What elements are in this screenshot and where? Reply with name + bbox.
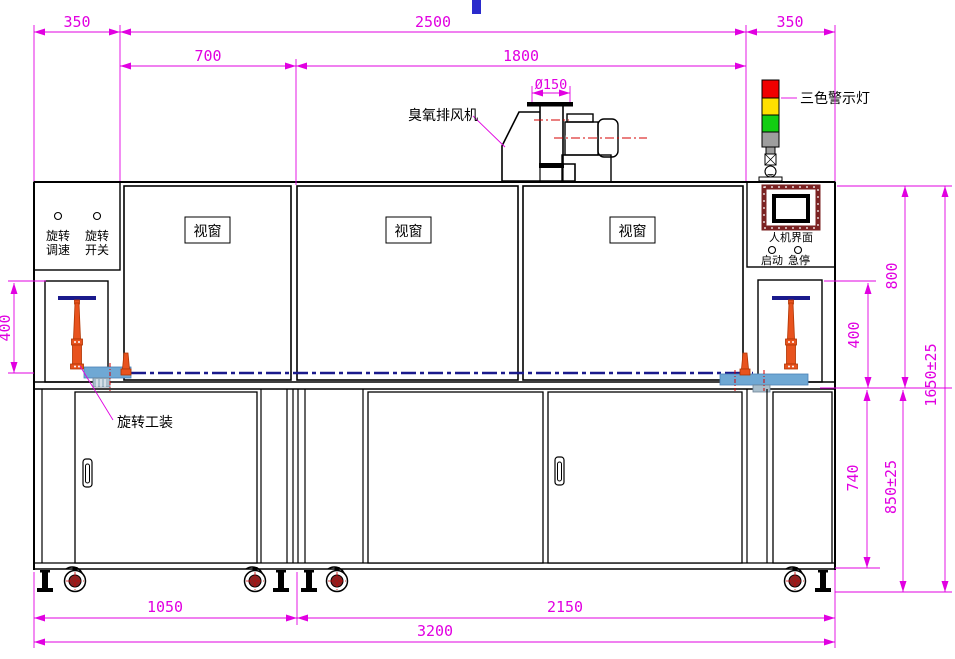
left-rotation-fixture <box>58 296 96 369</box>
viewport-label-3: 视窗 <box>619 223 647 239</box>
leveling-foot <box>815 570 831 592</box>
cabinet-door-3[interactable] <box>548 392 742 563</box>
leveling-foot <box>273 570 289 592</box>
dim-740: 740 <box>844 464 862 491</box>
rotation-speed-label2: 调速 <box>46 243 70 257</box>
ozone-exhaust-fan <box>502 102 647 182</box>
dim-350-left: 350 <box>63 13 90 31</box>
viewport-label-1: 视窗 <box>194 223 222 239</box>
left-control-panel: 旋转 调速 旋转 开关 <box>34 182 120 270</box>
viewport-label-2: 视窗 <box>395 223 423 239</box>
dim-2500: 2500 <box>415 13 451 31</box>
dim-1050: 1050 <box>147 598 183 616</box>
estop-button[interactable] <box>795 247 802 254</box>
hmi-label: 人机界面 <box>769 230 813 244</box>
rotation-speed-knob[interactable] <box>55 213 62 220</box>
estop-label: 急停 <box>788 253 810 267</box>
dim-3200: 3200 <box>417 622 453 640</box>
dim-850: 850±25 <box>882 460 900 514</box>
fan-motor-base <box>562 155 611 182</box>
dim-2150: 2150 <box>547 598 583 616</box>
chamber-2 <box>297 186 518 380</box>
door-handle-1[interactable] <box>83 459 92 487</box>
leveling-foot <box>37 570 53 592</box>
dim-400-left: 400 <box>0 314 14 341</box>
tricolor-warning-light <box>759 80 782 183</box>
ozone-fan-label: 臭氧排风机 <box>408 107 478 123</box>
caster-wheel <box>65 567 86 592</box>
mini-fixture-right <box>740 353 750 375</box>
dim-800: 800 <box>883 262 901 289</box>
caster-wheel <box>245 567 266 592</box>
dim-350-right: 350 <box>776 13 803 31</box>
rotation-speed-label: 旋转 <box>46 228 70 243</box>
hmi-touchscreen[interactable] <box>764 187 818 228</box>
cabinet-door-2[interactable] <box>368 392 543 563</box>
leveling-foot <box>301 570 317 592</box>
door-handle-2[interactable] <box>555 457 564 485</box>
caster-wheel <box>785 567 806 592</box>
machine-front-view-drawing: 旋转 调速 旋转 开关 <box>0 0 955 659</box>
mini-fixture-left <box>121 353 131 375</box>
cabinet-panel-right <box>773 392 832 563</box>
fan-motor-capacitor <box>567 114 593 122</box>
dim-dia-150: Ø150 <box>535 77 568 93</box>
text-cursor-artifact <box>472 0 481 14</box>
start-button[interactable] <box>769 247 776 254</box>
engineering-drawing-canvas: 旋转 调速 旋转 开关 <box>0 0 955 659</box>
rotation-fixture-label: 旋转工装 <box>117 414 173 430</box>
start-label: 启动 <box>761 254 783 267</box>
rotation-switch-label: 旋转 <box>85 228 109 243</box>
caster-wheel <box>327 567 348 592</box>
rotation-switch-knob[interactable] <box>94 213 101 220</box>
dim-700: 700 <box>194 47 221 65</box>
process-chambers <box>124 186 743 380</box>
leveling-feet-and-casters <box>37 567 831 592</box>
chamber-1 <box>124 186 291 380</box>
viewport-windows: 视窗 视窗 视窗 <box>185 217 655 243</box>
chamber-3 <box>523 186 743 380</box>
right-rotation-fixture <box>772 296 810 369</box>
dim-1800: 1800 <box>503 47 539 65</box>
rotation-switch-label2: 开关 <box>85 243 109 257</box>
dim-400-right: 400 <box>845 321 863 348</box>
dim-1650: 1650±25 <box>922 343 940 406</box>
